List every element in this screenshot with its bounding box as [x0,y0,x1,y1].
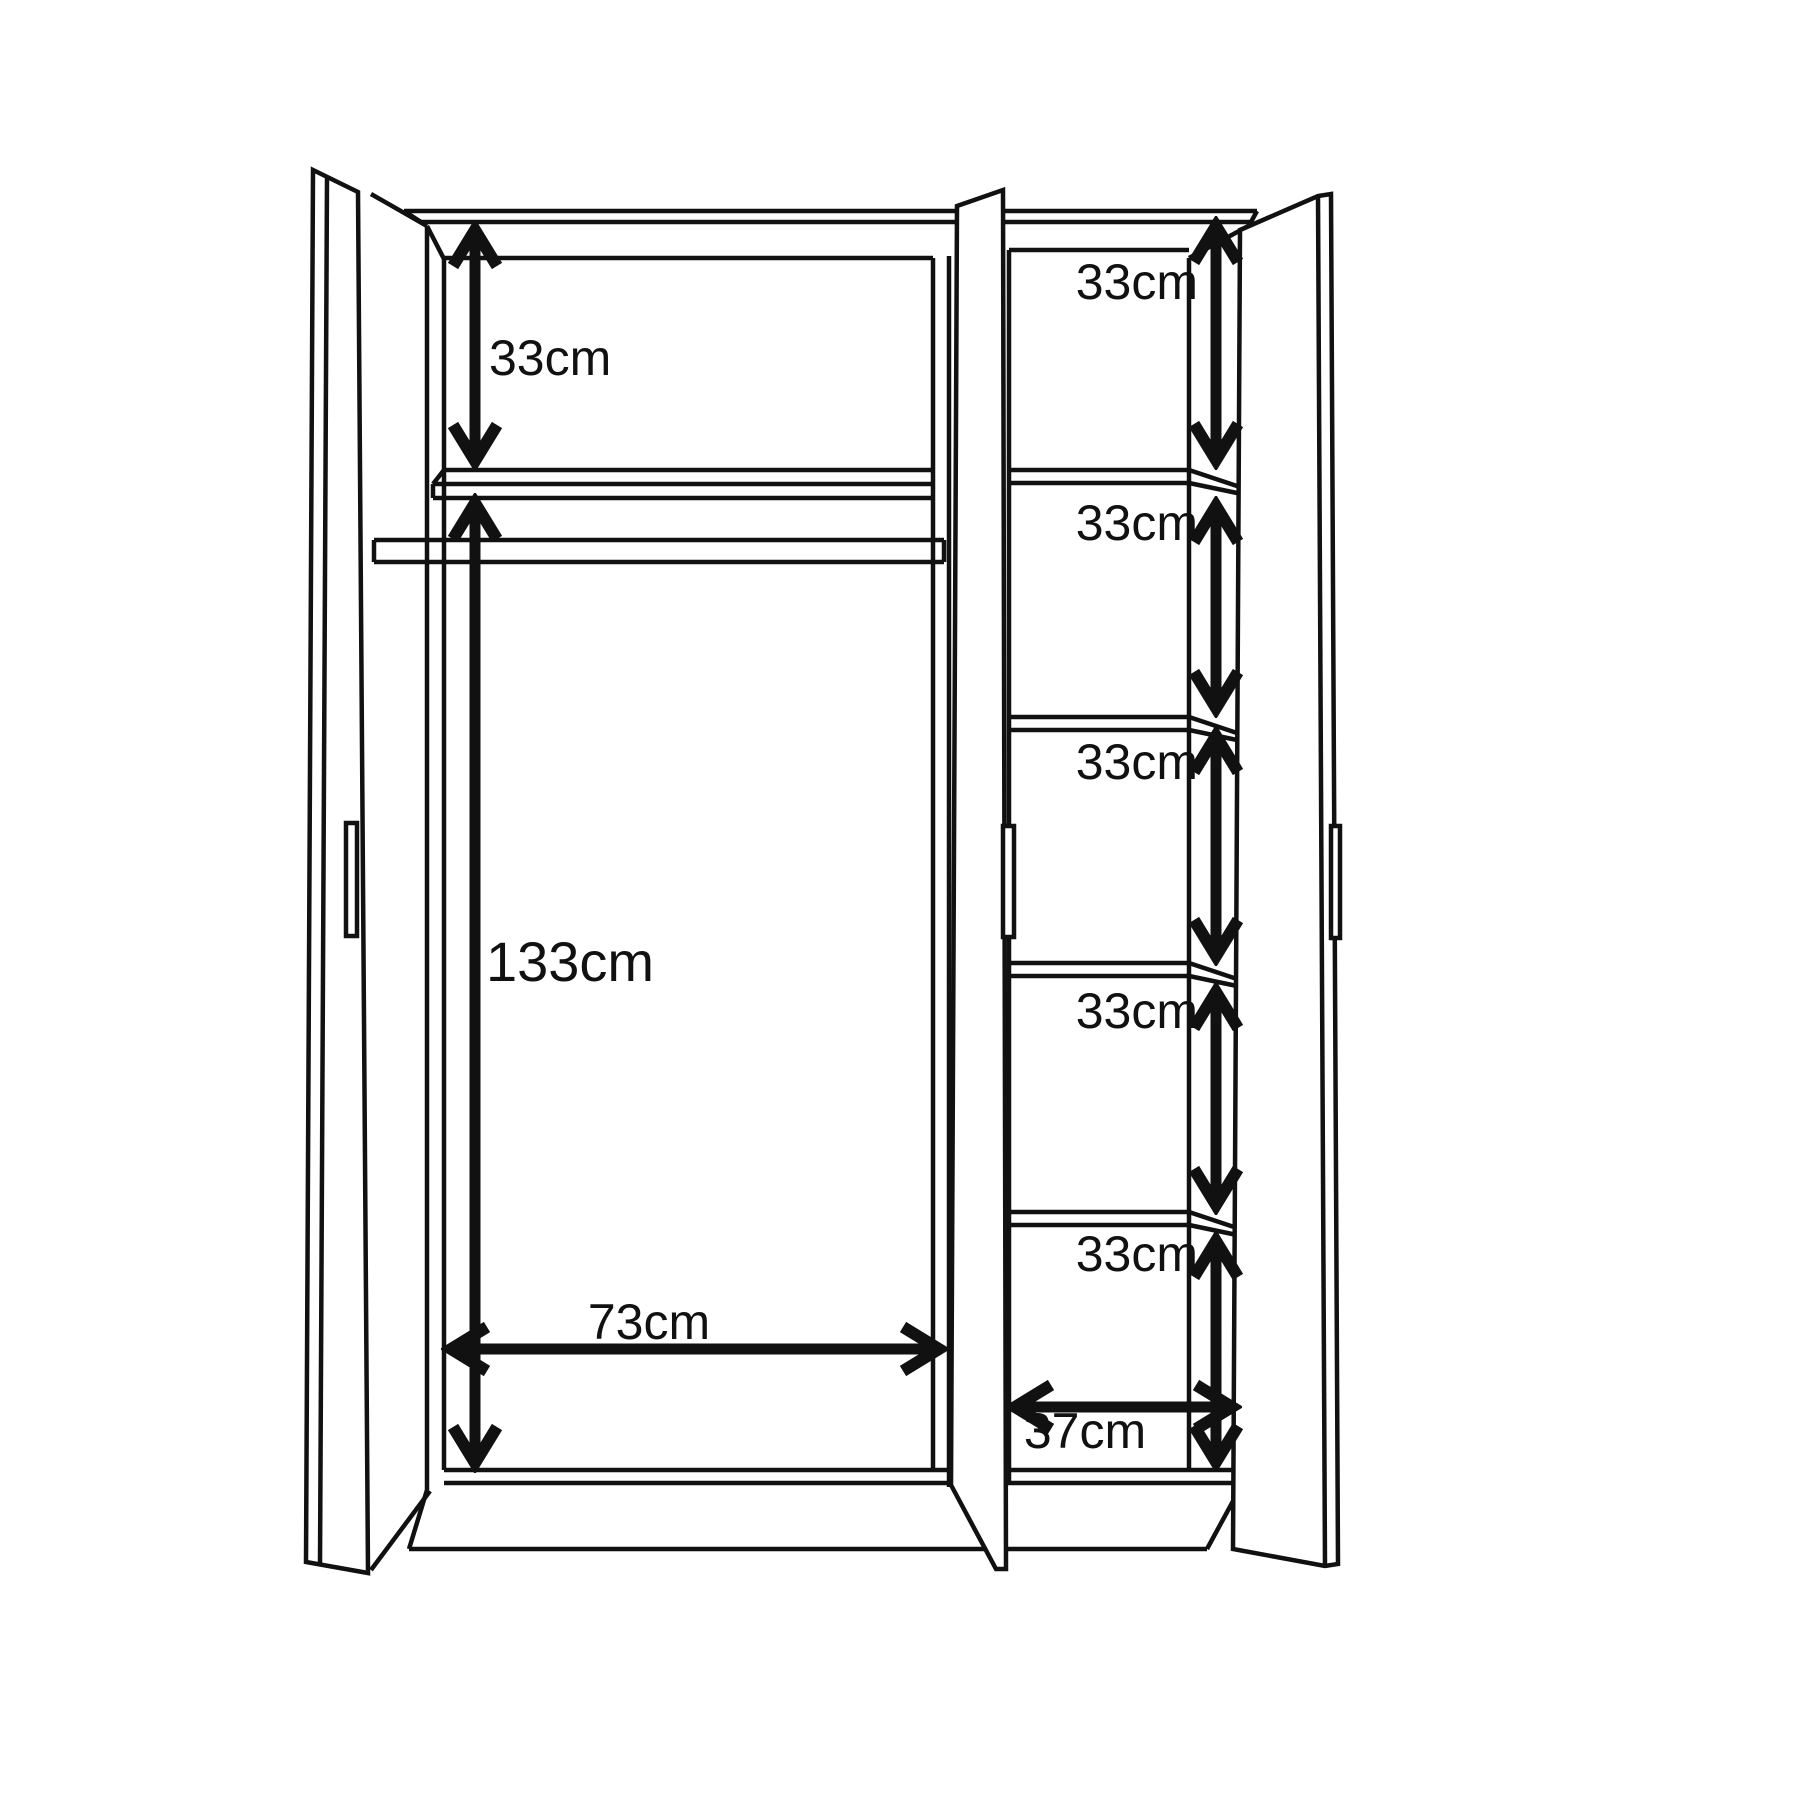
label-left-top-height: 33cm [489,330,611,386]
label-shelf-3-height: 33cm [1076,734,1198,790]
middle-door-panel [951,190,1006,1569]
label-shelf-1-height: 33cm [1076,254,1198,310]
label-hanging-height: 133cm [486,930,654,993]
label-shelf-width: 37cm [1024,1403,1146,1459]
diagram-canvas: 33cm 133cm 73cm 33cm 33cm 33cm 33cm 33cm… [0,0,1800,1800]
plinth [371,1490,1238,1570]
middle-door-handle [1003,826,1014,937]
label-hanging-width: 73cm [588,1294,710,1350]
wardrobe-body [371,194,1257,1570]
wardrobe-dimension-diagram: 33cm 133cm 73cm 33cm 33cm 33cm 33cm 33cm… [0,0,1800,1800]
hanging-rail [374,540,944,562]
middle-door [951,190,1014,1569]
centre-partition [933,256,949,1487]
left-top-shelf [433,470,933,498]
right-door-handle [1331,826,1340,938]
right-door [1233,194,1340,1566]
left-door-handle [346,823,357,936]
cabinet-floor [444,1470,1238,1483]
top-panel [404,211,1257,222]
label-shelf-2-height: 33cm [1076,495,1198,551]
shelf-1 [1009,470,1237,493]
label-shelf-5-height: 33cm [1076,1226,1198,1282]
left-side-panel [427,226,444,1490]
label-shelf-4-height: 33cm [1076,983,1198,1039]
dimension-labels: 33cm 133cm 73cm 33cm 33cm 33cm 33cm 33cm… [486,254,1198,1459]
left-door [306,170,368,1573]
